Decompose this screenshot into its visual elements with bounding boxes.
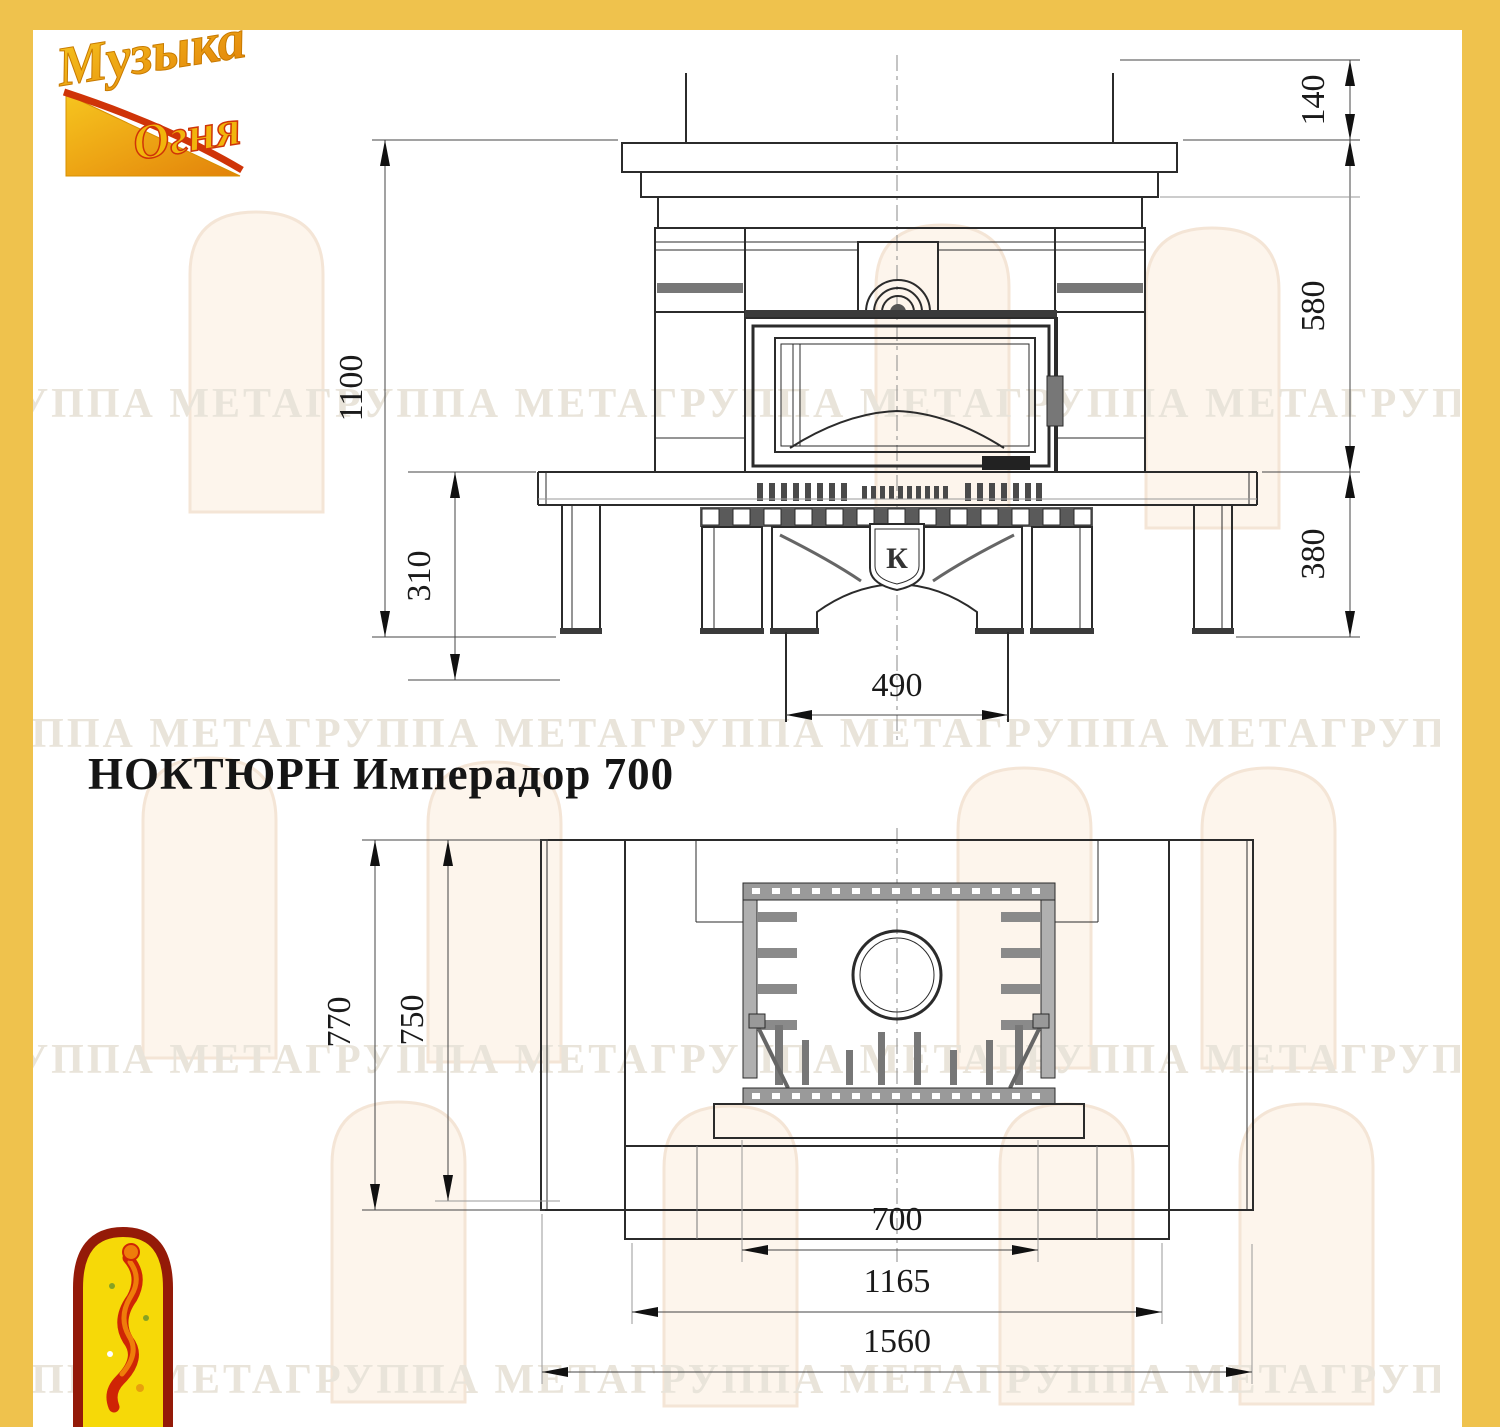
mantel-shelf: [622, 143, 1177, 228]
shield-emblem: К: [870, 524, 924, 590]
plan-firebox-insert: [714, 883, 1084, 1138]
pilasters: [655, 312, 1145, 472]
shield-letter: К: [886, 542, 908, 575]
frieze: [655, 228, 1145, 312]
page-border-left: [0, 0, 33, 1427]
dim-body-height: 580: [1295, 281, 1332, 332]
dim-total-width: 1560: [863, 1323, 931, 1360]
plan-front-slab: [714, 1104, 1084, 1138]
plan-view: [541, 828, 1253, 1262]
page-border-top: [0, 0, 1500, 30]
dim-depth: 770: [321, 997, 358, 1048]
brand-logo-icon: Музыка Огня: [18, 8, 318, 178]
door-handle: [1047, 376, 1063, 426]
firebox: [745, 310, 1063, 501]
dim-inner-depth: 750: [394, 995, 431, 1046]
dim-base-height: 380: [1295, 529, 1332, 580]
dim-mantel-top: 140: [1295, 75, 1332, 126]
model-title: НОКТЮРН Имперадор 700: [88, 748, 674, 800]
vent-grille: [757, 483, 1042, 501]
fan-ornament: [858, 242, 938, 312]
flue-opening: [853, 931, 941, 1019]
dim-pedestal-width: 490: [872, 667, 923, 704]
drawing-page: ГРУППА МЕТАГРУППА МЕТАГРУППА МЕТАГРУППА …: [0, 0, 1500, 1427]
dim-hearth-height: 310: [401, 551, 438, 602]
front-view: К: [538, 55, 1257, 745]
flame-emblem-icon: [68, 1222, 178, 1427]
dim-body-width: 1165: [864, 1263, 931, 1300]
fireplace-technical-drawing: К 1100 310: [0, 0, 1500, 1427]
front-view-dimensions: 1100 310 140 580 380: [333, 60, 1360, 720]
dim-total-height: 1100: [333, 355, 370, 422]
dim-opening-width: 700: [872, 1201, 923, 1238]
page-border-right: [1462, 30, 1500, 1427]
